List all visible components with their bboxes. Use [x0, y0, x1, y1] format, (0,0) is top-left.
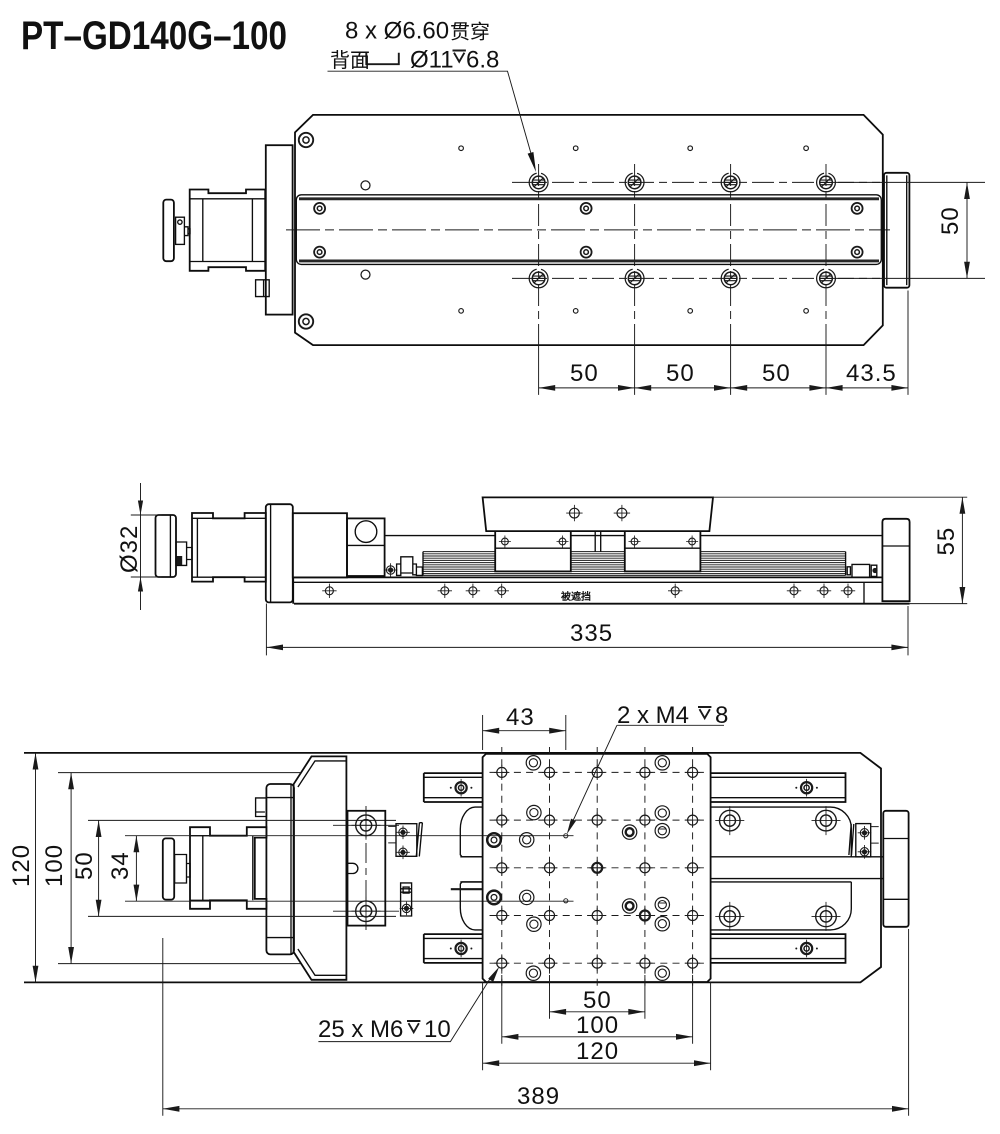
svg-text:100: 100: [41, 844, 68, 887]
svg-text:100: 100: [576, 1012, 619, 1039]
svg-text:贯穿: 贯穿: [450, 21, 490, 44]
svg-text:50: 50: [937, 206, 964, 235]
svg-text:120: 120: [8, 844, 35, 887]
svg-text:50: 50: [583, 987, 612, 1014]
svg-text:389: 389: [517, 1083, 560, 1110]
svg-text:43.5: 43.5: [846, 360, 897, 387]
svg-text:6.8: 6.8: [466, 47, 499, 74]
svg-text:2 x M4: 2 x M4: [617, 702, 689, 729]
svg-text:背面: 背面: [330, 49, 370, 72]
svg-text:50: 50: [71, 851, 98, 880]
svg-text:10: 10: [424, 1016, 451, 1043]
svg-text:8 x Ø6.60: 8 x Ø6.60: [345, 18, 449, 45]
svg-text:55: 55: [933, 527, 960, 556]
svg-text:PT–GD140G–100: PT–GD140G–100: [21, 14, 287, 58]
svg-text:Ø32: Ø32: [116, 525, 143, 573]
svg-text:335: 335: [570, 620, 613, 647]
svg-text:Ø11: Ø11: [410, 47, 454, 74]
svg-text:34: 34: [107, 851, 134, 880]
svg-text:50: 50: [666, 360, 695, 387]
svg-text:25 x M6: 25 x M6: [318, 1016, 403, 1043]
svg-text:43: 43: [506, 704, 535, 731]
svg-text:50: 50: [570, 360, 599, 387]
svg-text:8: 8: [715, 702, 728, 729]
svg-text:被遮挡: 被遮挡: [561, 590, 591, 603]
svg-text:120: 120: [576, 1038, 619, 1065]
svg-text:50: 50: [762, 360, 791, 387]
